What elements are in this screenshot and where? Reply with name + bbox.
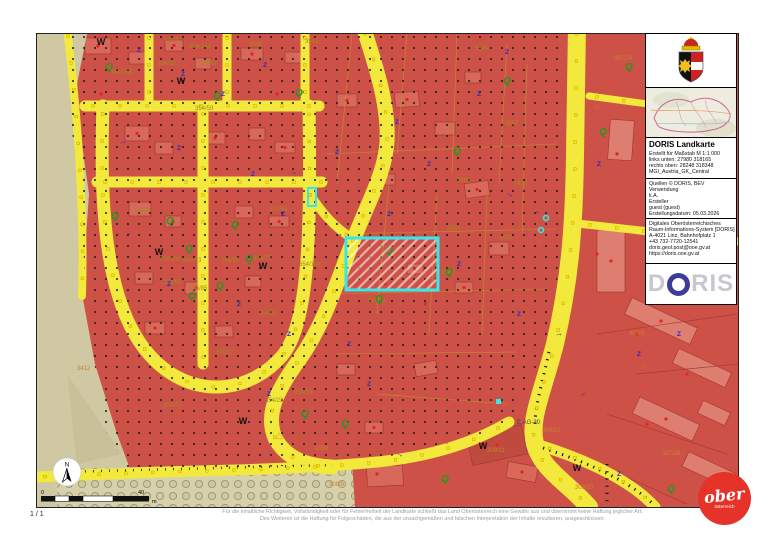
parcel-label: 354/83 — [221, 258, 240, 264]
parcel-label: 307/28 — [662, 451, 681, 457]
upper-austria-coat-of-arms — [671, 36, 711, 86]
parcel-label: 3549 — [475, 46, 489, 52]
Z-symbol: Z — [335, 149, 339, 156]
Q-symbol: Q — [166, 216, 174, 227]
Z-symbol: Z — [281, 211, 285, 218]
ooe-logo-script: ober — [704, 486, 746, 504]
disclaimer-text: Für die inhaltliche Richtigkeit, Vollstä… — [160, 509, 705, 522]
Z-symbol: Z — [637, 351, 641, 358]
Q-symbol: Q — [231, 220, 239, 231]
ocircle-symbol: ○ — [207, 189, 211, 196]
Z-symbol: Z — [167, 281, 171, 288]
doris-logo-ris: RIS — [691, 270, 734, 298]
cyan-marker-square — [496, 399, 501, 404]
parcel-label: 3543 — [305, 39, 319, 45]
parcel-label: 354/95 — [163, 280, 182, 286]
doris-map-export-page: 354/61354/144354535433549354/57354/63354… — [0, 0, 770, 545]
Z-symbol: Z — [387, 211, 391, 218]
parcel-label: 307/3 — [629, 331, 645, 337]
disclaimer-line2: Des Weiteren ist die Haftung für Folgesc… — [160, 516, 705, 523]
doris-logo: D RIS — [648, 270, 734, 298]
parcel-label: 309/9 — [329, 482, 345, 488]
parcel-label: 3412 — [77, 366, 91, 372]
overview-map — [646, 88, 736, 137]
Z-symbol: Z — [677, 331, 681, 338]
Q-symbol: Q — [105, 62, 113, 73]
parcel-label: 354/57 — [199, 61, 218, 67]
ocircle-symbol: ○ — [537, 239, 541, 246]
parcel-label: 309/20 — [575, 485, 594, 491]
Q-symbol: Q — [667, 484, 675, 495]
ocircle-symbol: ○ — [641, 364, 645, 371]
svg-text:40: 40 — [138, 490, 144, 496]
contact-lines: Digitales OberösterreichischesRaum-Infor… — [649, 221, 733, 258]
Q-symbol: Q — [111, 211, 119, 222]
Z-symbol: Z — [221, 91, 225, 98]
parcel-label: 309/12 — [542, 428, 561, 434]
parcel-label: 354/23 — [265, 398, 284, 404]
map-viewport[interactable]: 354/61354/144354535433549354/57354/63354… — [36, 33, 739, 508]
parcel-label: 354/73 — [294, 390, 313, 396]
selected-parcel-highlight[interactable] — [346, 238, 438, 290]
parcel-label: 354/61 — [164, 38, 183, 44]
parcel-label: 354/158 — [111, 70, 133, 76]
parcel-label: 3567 — [505, 121, 519, 127]
parcel-label: 3565 — [457, 178, 471, 184]
parcel-label: 354/108 — [299, 262, 321, 268]
page-number: 1 / 1 — [30, 511, 44, 518]
overview-map-box — [645, 87, 737, 138]
Z-symbol: Z — [517, 311, 521, 318]
map-info-box: DORIS Landkarte Erstellt für Maßstab M 1… — [645, 137, 737, 179]
Z-symbol: Z — [367, 381, 371, 388]
parcel-label: 354/59 — [195, 106, 214, 112]
Q-symbol: Q — [453, 146, 461, 157]
W-symbol: W — [259, 261, 268, 271]
Q-symbol: Q — [216, 281, 224, 292]
Z-symbol: Z — [237, 301, 241, 308]
ocircle-symbol: ○ — [595, 104, 599, 111]
parcel-label: 354/27 — [163, 403, 182, 409]
Z-symbol: Z — [287, 331, 291, 338]
svg-text:0: 0 — [41, 490, 44, 496]
contact-info-box: Digitales OberösterreichischesRaum-Infor… — [645, 218, 737, 264]
parcel-label: E.AG-30 — [517, 420, 541, 426]
parcel-label: 3545 — [249, 42, 263, 48]
Q-symbol: Q — [213, 91, 221, 102]
Q-symbol: Q — [185, 244, 193, 255]
Q-symbol: Q — [188, 291, 196, 302]
parcel-label: 1392 — [315, 446, 329, 452]
info-line: MGI_Austria_GK_Central — [649, 169, 733, 175]
svg-text:N: N — [65, 462, 70, 469]
map-canvas[interactable]: 354/61354/144354535433549354/57354/63354… — [37, 34, 738, 507]
parcel-label: 354/100 — [159, 257, 181, 263]
arrow-symbol: → — [554, 328, 563, 338]
arrow-symbol: → — [335, 229, 343, 238]
Z-symbol: Z — [427, 161, 431, 168]
parcel-label: 309/11 — [487, 448, 506, 454]
map-title: DORIS Landkarte — [649, 140, 733, 149]
W-symbol: W — [573, 463, 582, 473]
doris-logo-d: D — [648, 270, 666, 298]
Z-symbol: Z — [505, 49, 509, 56]
parcel-label: 1422 — [514, 181, 528, 187]
parcel-label: 3564 — [447, 226, 461, 232]
Q-symbol: Q — [295, 88, 303, 99]
parcel-label: 354/93 — [183, 258, 202, 264]
parcel-label: 354/81 — [259, 311, 278, 317]
info-line: Erstellungsdatum: 05.03.2026 — [649, 211, 733, 217]
north-arrow: N — [53, 458, 81, 486]
Z-symbol: Z — [267, 391, 271, 398]
triangle-symbol: △ — [276, 430, 283, 440]
parcel-label: 354/65 — [269, 207, 288, 213]
coat-of-arms-box — [645, 33, 737, 88]
Q-symbol: Q — [503, 76, 511, 87]
source-lines: Quellen © DORIS, BEVVerwendungk.A.Erstel… — [649, 181, 733, 218]
W-symbol: W — [479, 441, 488, 451]
Q-symbol: Q — [245, 254, 253, 265]
parcel-label: 354/63 — [157, 61, 176, 67]
source-info-box: Quellen © DORIS, BEVVerwendungk.A.Erstel… — [645, 178, 737, 219]
parcel-label: 354/91 — [133, 208, 152, 214]
Z-symbol: Z — [347, 341, 351, 348]
Z-symbol: Z — [597, 161, 601, 168]
Q-symbol: Q — [301, 409, 309, 420]
Z-symbol: Z — [181, 71, 185, 78]
doris-logo-box: D RIS — [645, 263, 737, 305]
W-symbol: W — [97, 37, 106, 47]
Z-symbol: Z — [251, 171, 255, 178]
Q-symbol: Q — [599, 127, 607, 138]
Z-symbol: Z — [477, 91, 481, 98]
doris-logo-ring-icon — [667, 273, 690, 296]
W-symbol: W — [155, 247, 164, 257]
Q-symbol: Q — [341, 419, 349, 430]
parcel-label: 354/37 — [215, 350, 234, 356]
oberoesterreich-logo: ober österreich — [698, 472, 751, 525]
Z-symbol: Z — [263, 62, 267, 69]
Z-symbol: Z — [177, 145, 181, 152]
Q-symbol: Q — [625, 62, 633, 73]
Q-symbol: Q — [445, 267, 453, 278]
Z-symbol: Z — [395, 119, 399, 126]
parcel-label: 1421 — [499, 235, 513, 241]
Q-symbol: Q — [441, 474, 449, 485]
parcel-label: 354/144 — [189, 44, 211, 50]
map-meta-lines: Erstellt für Maßstab M 1:1 000links unte… — [649, 151, 733, 175]
info-line: https://doris.ooe.gv.at — [649, 251, 733, 257]
Z-symbol: Z — [137, 47, 141, 54]
svg-text:m: m — [152, 499, 157, 505]
W-symbol: W — [239, 416, 248, 426]
Z-symbol: Z — [457, 261, 461, 268]
Z-symbol: Z — [617, 471, 621, 478]
Q-symbol: Q — [375, 294, 383, 305]
disclaimer-line1: Für die inhaltliche Richtigkeit, Vollstä… — [160, 509, 705, 516]
